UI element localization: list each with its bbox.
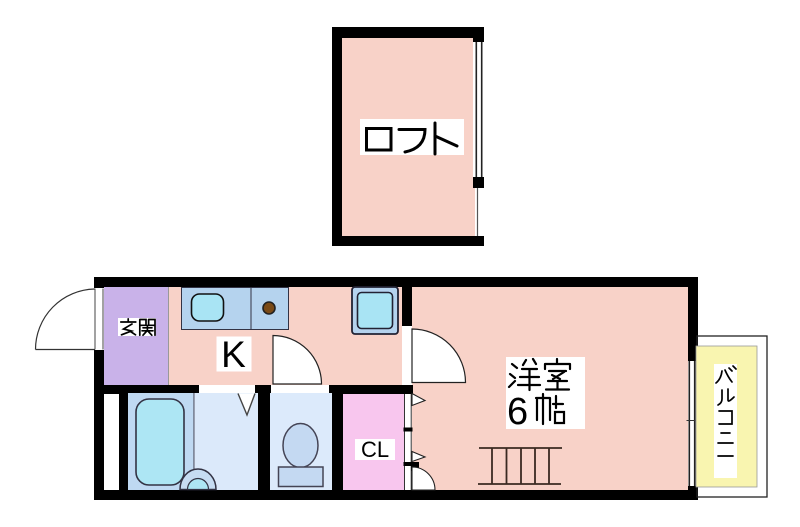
svg-text:CL: CL [361, 437, 389, 462]
svg-text:K: K [221, 334, 246, 375]
svg-text:6: 6 [507, 391, 528, 433]
